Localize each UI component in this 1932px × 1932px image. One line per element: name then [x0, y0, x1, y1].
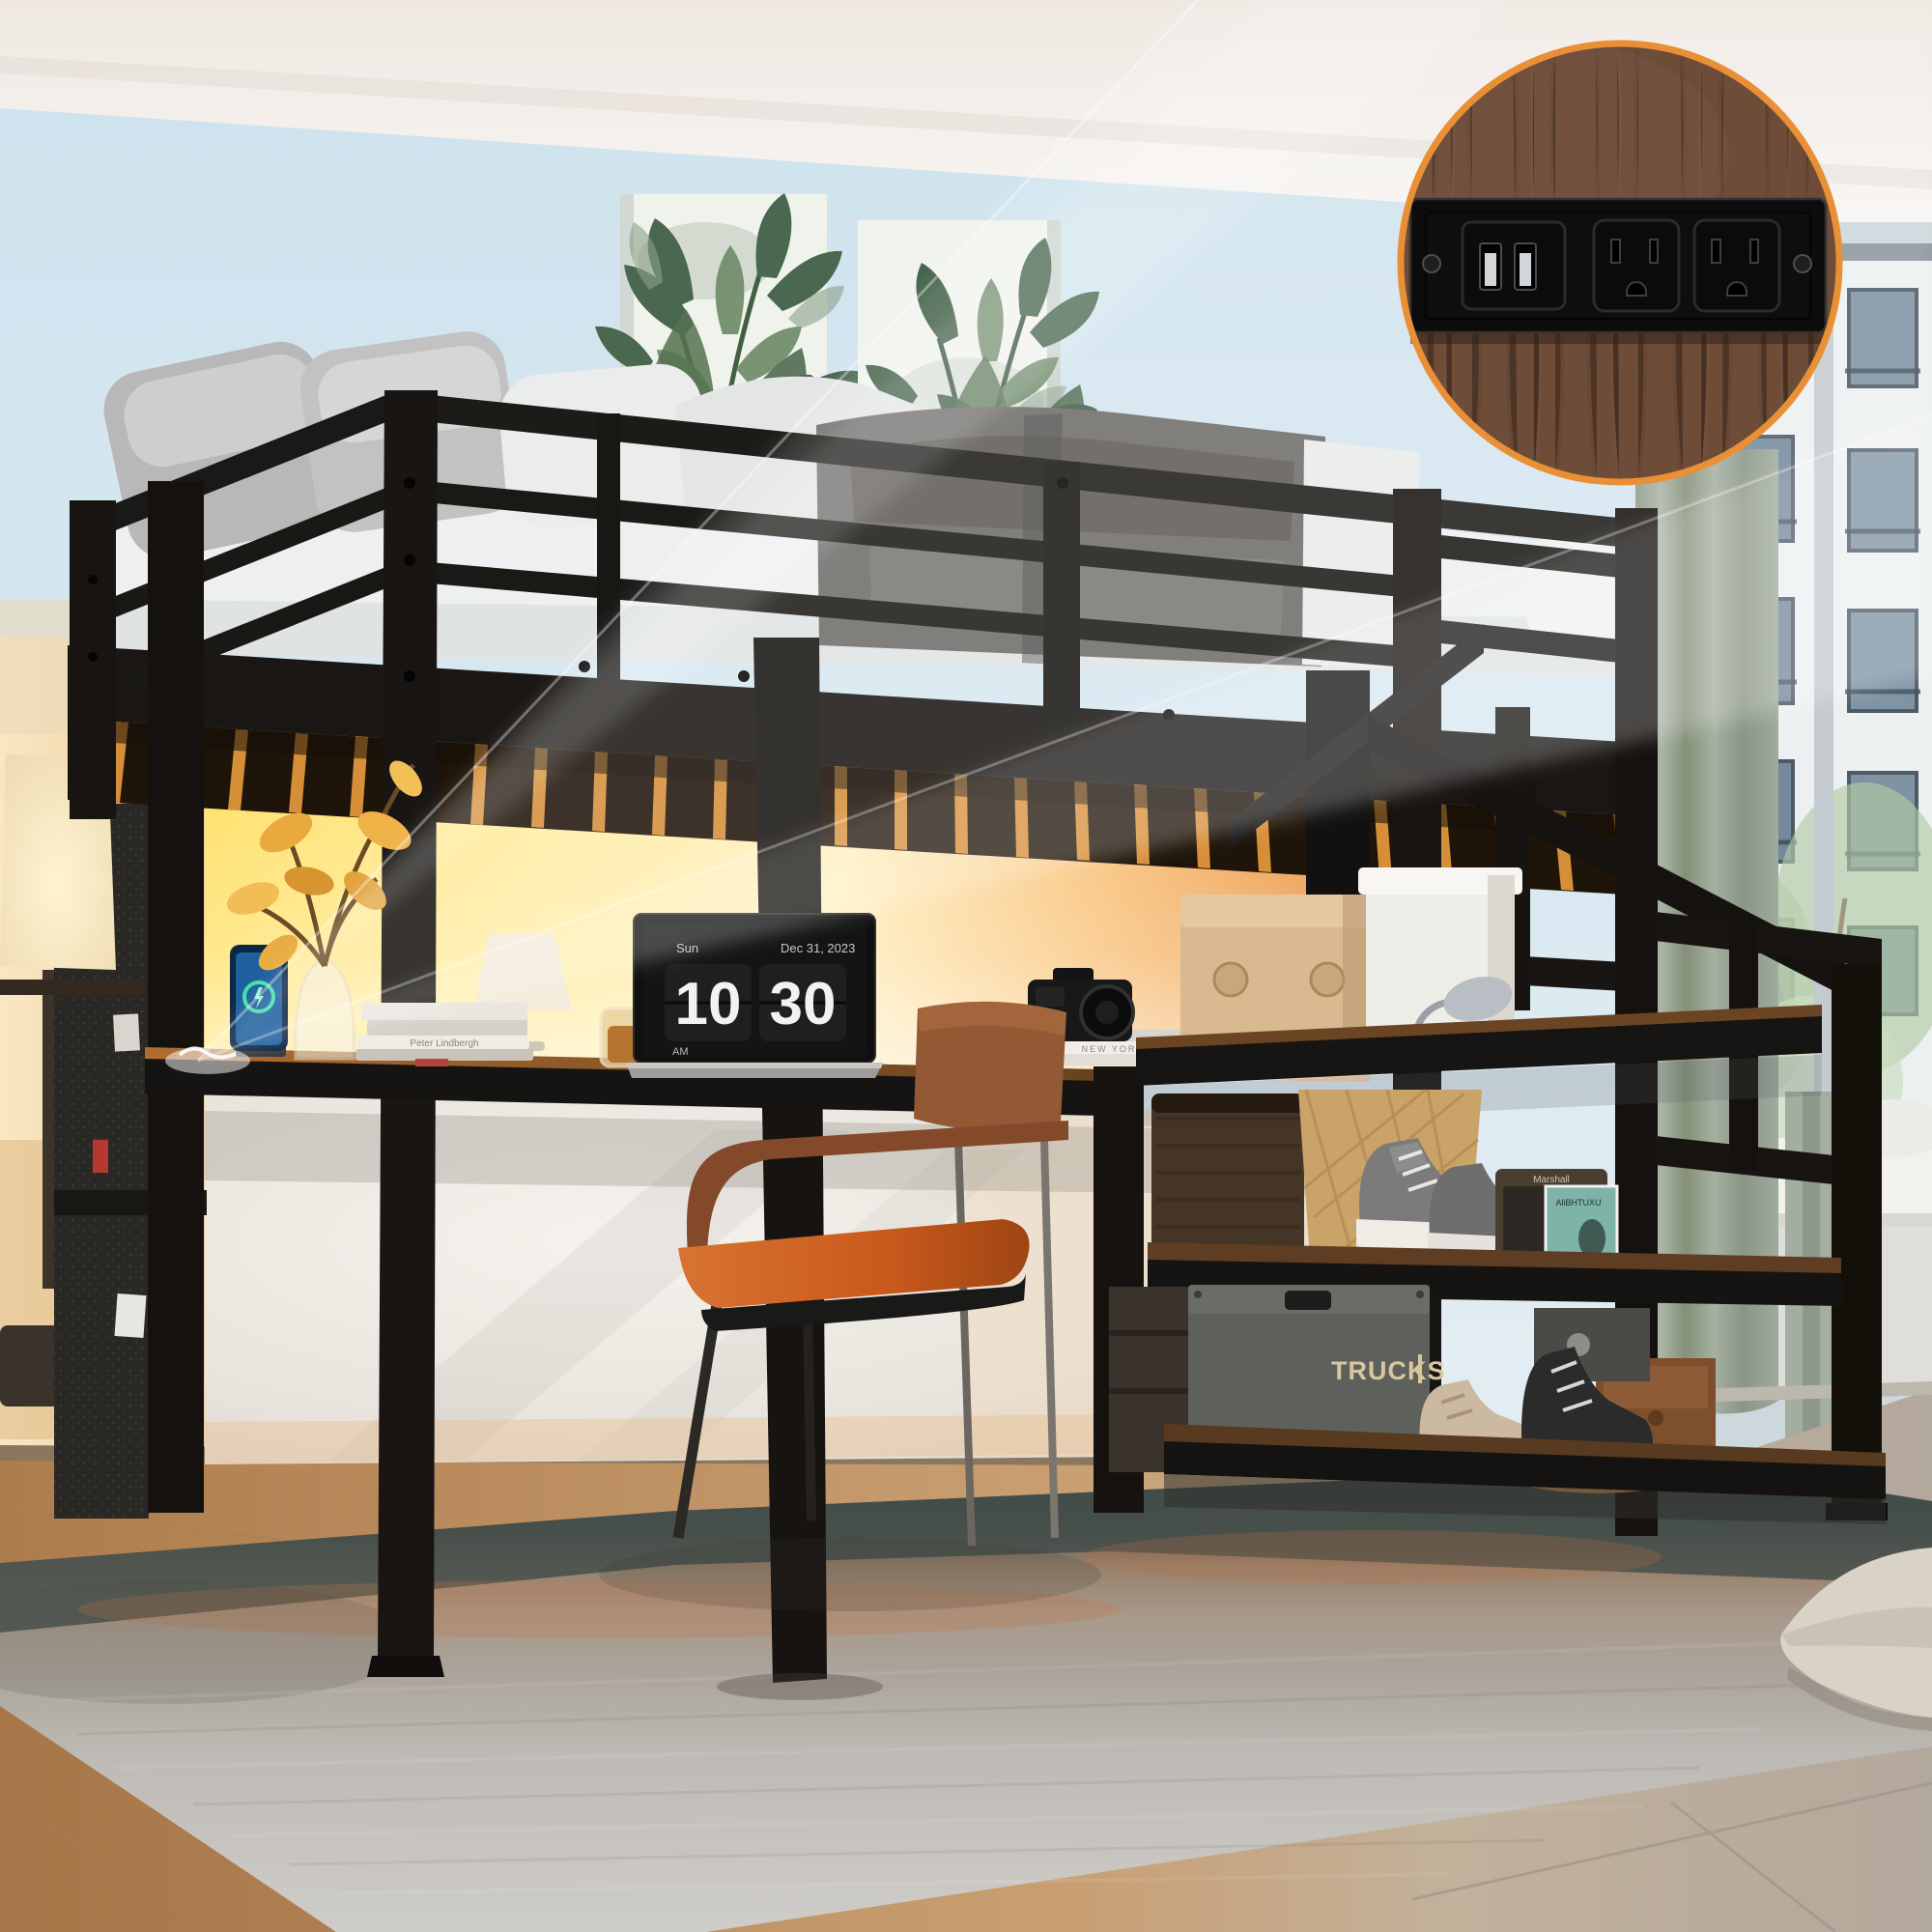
svg-text:NEW YORK: NEW YORK: [1082, 1044, 1145, 1054]
svg-text:Marshall: Marshall: [1533, 1175, 1570, 1185]
svg-text:AM: AM: [672, 1046, 689, 1058]
svg-text:10: 10: [675, 971, 742, 1037]
svg-text:Dec 31, 2023: Dec 31, 2023: [781, 941, 855, 955]
svg-text:AliBHTUXU: AliBHTUXU: [1555, 1198, 1601, 1207]
svg-text:TRUCKS: TRUCKS: [1331, 1356, 1446, 1385]
svg-text:Peter Lindbergh: Peter Lindbergh: [410, 1038, 478, 1049]
svg-text:30: 30: [770, 971, 837, 1037]
